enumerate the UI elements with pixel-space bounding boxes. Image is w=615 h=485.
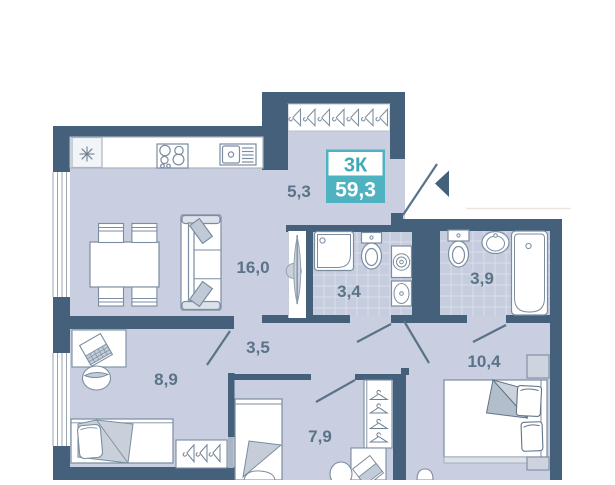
svg-text:3К: 3К bbox=[344, 155, 368, 177]
svg-text:10,4: 10,4 bbox=[467, 352, 501, 371]
svg-text:7,9: 7,9 bbox=[308, 427, 332, 446]
svg-text:3,4: 3,4 bbox=[337, 282, 361, 301]
svg-text:16,0: 16,0 bbox=[236, 258, 269, 277]
svg-text:59,3: 59,3 bbox=[335, 179, 376, 202]
svg-text:3,9: 3,9 bbox=[470, 269, 494, 288]
svg-text:8,9: 8,9 bbox=[154, 370, 178, 389]
svg-text:5,3: 5,3 bbox=[287, 182, 311, 201]
svg-text:3,5: 3,5 bbox=[246, 338, 270, 357]
